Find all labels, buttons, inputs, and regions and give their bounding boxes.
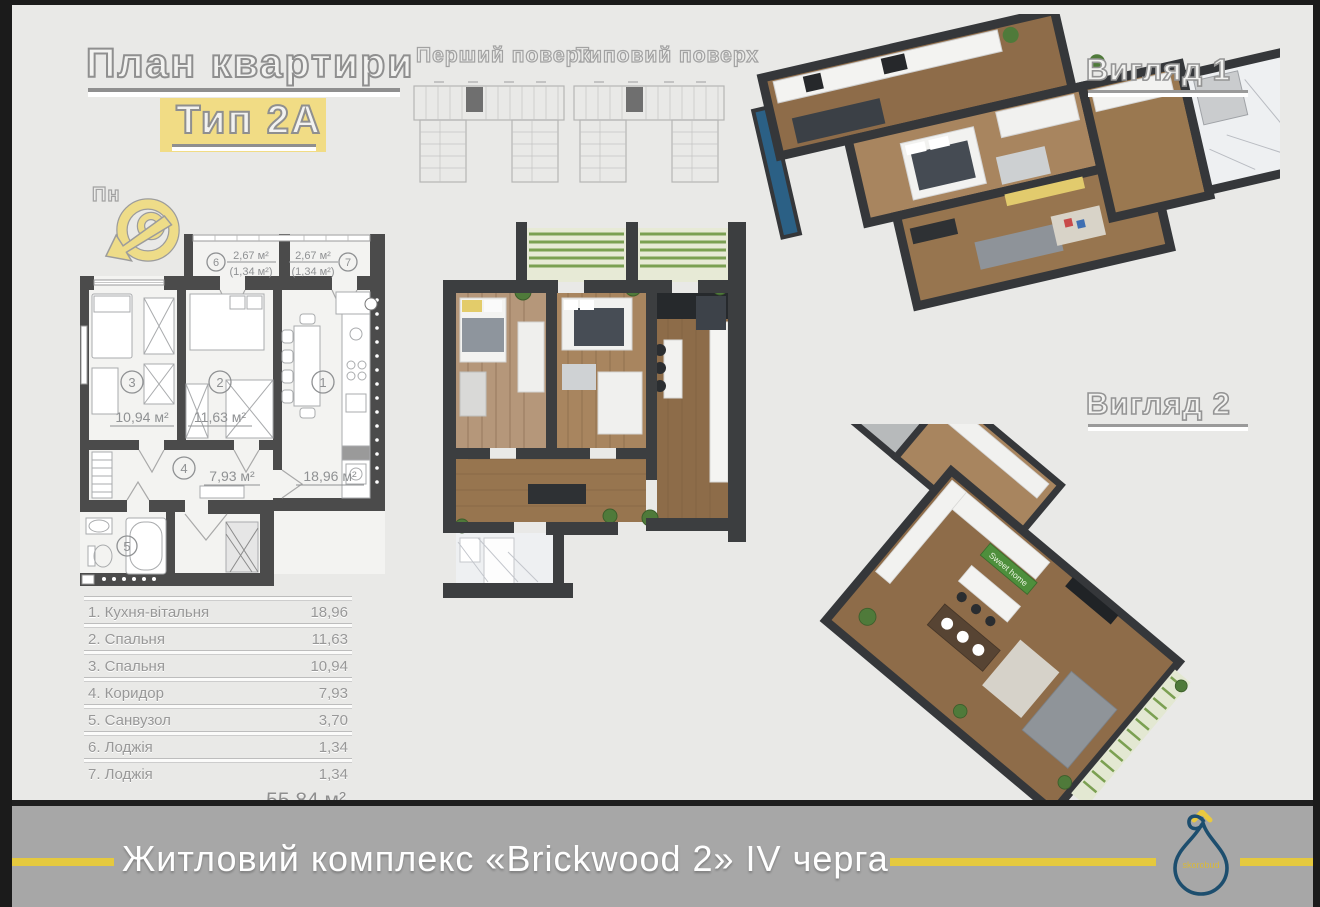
frame-right (1313, 0, 1320, 907)
room1-area: 18,96 м² (303, 468, 357, 484)
first-floor-label: Перший поверх (416, 44, 592, 68)
complex-title: Житловий комплекс «Brickwood 2» IV черга (122, 838, 889, 880)
table-row: 7. Лоджія 1,34 (84, 763, 352, 785)
first-floor-miniplan (410, 70, 568, 190)
room3-number: 3 (128, 375, 135, 390)
room-area: 10,94 (310, 658, 348, 675)
room-area: 7,93 (319, 685, 348, 702)
render-top-view (398, 222, 746, 610)
room-area: 18,96 (310, 604, 348, 621)
area-table: 1. Кухня-вітальня 18,96 2. Спальня 11,63… (84, 596, 352, 824)
room3-area: 10,94 м² (115, 409, 169, 425)
frame-top (0, 0, 1320, 5)
room-area: 1,34 (319, 739, 348, 756)
logo-text: skorobud (1182, 860, 1219, 870)
view2-label: Вигляд 2 (1086, 386, 1231, 422)
page-title: План квартири (86, 40, 415, 87)
room-label: 2. Спальня (88, 631, 165, 648)
room-label: 6. Лоджія (88, 739, 153, 756)
floorplan-sheet: План квартири Тип 2А Перший поверх Типов… (0, 0, 1320, 907)
room-label: 5. Санвузол (88, 712, 171, 729)
table-row: 3. Спальня 10,94 (84, 655, 352, 677)
room5-number: 5 (123, 539, 130, 554)
table-row: 2. Спальня 11,63 (84, 628, 352, 650)
room2-number: 2 (216, 375, 223, 390)
room-area: 11,63 (312, 631, 348, 648)
loggia7-area: 2,67 м² (295, 250, 331, 262)
render-view-2: Sweet home (718, 424, 1284, 821)
type-underline (172, 144, 316, 151)
room-label: 4. Коридор (88, 685, 164, 702)
unit-location-marker (466, 87, 483, 112)
title-underline (88, 88, 400, 97)
room4-area: 7,93 м² (209, 468, 255, 484)
loggia6-number: 6 (213, 257, 219, 269)
table-row: 5. Санвузол 3,70 (84, 709, 352, 731)
plan-2d: 6 2,67 м² (1,34 м²) 7 2,67 м² (1,34 м²) … (80, 234, 385, 586)
accent-line-mid (890, 858, 1156, 866)
view1-underline (1088, 90, 1248, 97)
room-label: 3. Спальня (88, 658, 165, 675)
developer-logo: skorobud (1158, 810, 1244, 904)
view2-underline (1088, 424, 1248, 431)
table-row: 1. Кухня-вітальня 18,96 (84, 601, 352, 623)
accent-line-left (12, 858, 114, 866)
apartment-type-label: Тип 2А (176, 98, 322, 143)
room-label: 7. Лоджія (88, 766, 153, 783)
typical-floor-miniplan (570, 70, 728, 190)
room-area: 3,70 (319, 712, 348, 729)
room-label: 1. Кухня-вітальня (88, 604, 209, 621)
logo-loop-icon (1175, 816, 1227, 894)
loggia7-number: 7 (345, 257, 351, 269)
footer-banner: Житловий комплекс «Brickwood 2» IV черга… (0, 806, 1320, 907)
table-row: 6. Лоджія 1,34 (84, 736, 352, 758)
loggia6-area: 2,67 м² (233, 250, 269, 262)
typical-floor-label: Типовий поверх (576, 44, 759, 68)
frame-left (0, 0, 12, 907)
loggia7-area-reduced: (1,34 м²) (291, 266, 334, 278)
view1-label: Вигляд 1 (1086, 52, 1231, 88)
table-row: 4. Коридор 7,93 (84, 682, 352, 704)
room1-number: 1 (319, 375, 326, 390)
loggia6-area-reduced: (1,34 м²) (229, 266, 272, 278)
room2-area: 11,63 м² (194, 409, 247, 425)
room-area: 1,34 (319, 766, 348, 783)
unit-location-marker (626, 87, 643, 112)
accent-line-right (1240, 858, 1314, 866)
room4-number: 4 (180, 461, 187, 476)
